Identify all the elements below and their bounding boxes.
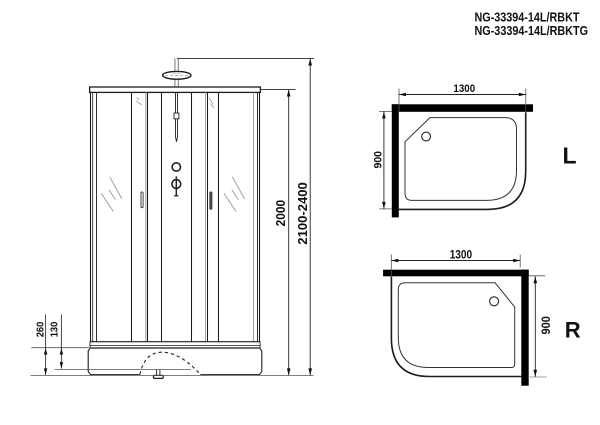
svg-text:900: 900	[539, 316, 553, 335]
svg-text:R: R	[565, 318, 581, 343]
svg-text:900: 900	[372, 151, 384, 169]
svg-text:1300: 1300	[450, 249, 472, 261]
svg-text:L: L	[563, 143, 577, 169]
svg-text:NG-33394-14L/RBKTG: NG-33394-14L/RBKTG	[475, 23, 589, 38]
svg-text:2000: 2000	[274, 200, 288, 227]
svg-text:1300: 1300	[453, 83, 475, 95]
svg-text:2100-2400: 2100-2400	[295, 182, 310, 245]
svg-text:130: 130	[49, 321, 60, 337]
svg-text:260: 260	[36, 321, 47, 337]
